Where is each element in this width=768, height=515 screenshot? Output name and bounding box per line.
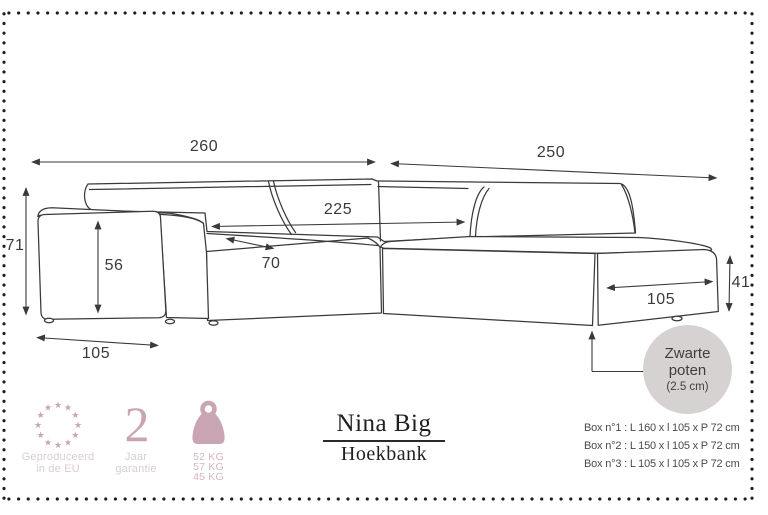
- weight-values: 52 KG 57 KG 45 KG: [181, 452, 236, 483]
- product-name: Nina Big: [294, 411, 474, 437]
- svg-text:★: ★: [64, 438, 72, 448]
- svg-text:★: ★: [71, 431, 79, 441]
- box-line-3: Box n°3 : L 105 x l 105 x P 72 cm: [584, 455, 756, 473]
- title-divider: [323, 440, 445, 442]
- dimension-armrest-depth: 105: [82, 346, 110, 362]
- warranty-caption-line1: Jaar: [86, 452, 186, 464]
- dimension-seat-depth: 70: [262, 256, 281, 272]
- svg-text:★: ★: [54, 441, 62, 451]
- dimension-inner-back-width: 225: [324, 202, 352, 218]
- dimension-chaise-height: 41: [732, 275, 751, 291]
- sofa-outline: [38, 179, 719, 326]
- box-dimensions-list: Box n°1 : L 160 x l 105 x P 72 cm Box n°…: [584, 419, 756, 473]
- product-type: Hoekbank: [294, 444, 474, 465]
- svg-text:★: ★: [37, 431, 45, 441]
- product-title-block: Nina Big Hoekbank: [294, 411, 474, 465]
- dimension-total-height: 71: [6, 238, 25, 254]
- svg-text:★: ★: [71, 411, 79, 421]
- svg-text:★: ★: [34, 421, 42, 431]
- weight-icon: [186, 399, 231, 449]
- svg-text:★: ★: [54, 401, 62, 411]
- warranty-badge-caption: Jaar garantie: [86, 452, 186, 475]
- dimension-armrest-height: 56: [105, 258, 124, 274]
- leg-callout-line1: Zwarte: [665, 345, 711, 362]
- leg-callout-line2: poten: [669, 362, 707, 379]
- eu-stars-icon: ★ ★ ★ ★ ★ ★ ★ ★ ★ ★ ★ ★: [28, 398, 88, 452]
- dimension-chaise-total-depth: 250: [537, 145, 565, 161]
- svg-text:★: ★: [74, 421, 82, 431]
- leg-callout-bubble: Zwarte poten (2.5 cm): [643, 325, 732, 414]
- product-spec-sheet: 260 250 71 56 105 225 70 105 41 Zwarte p…: [0, 0, 768, 515]
- dimension-chaise-front-width: 105: [647, 292, 675, 308]
- warranty-years-number: 2: [112, 400, 162, 448]
- svg-text:★: ★: [44, 438, 52, 448]
- box-line-2: Box n°2 : L 150 x l 105 x P 72 cm: [584, 437, 756, 455]
- box-line-1: Box n°1 : L 160 x l 105 x P 72 cm: [584, 419, 756, 437]
- svg-text:★: ★: [44, 404, 52, 414]
- weight-value-3: 45 KG: [181, 472, 236, 482]
- leg-callout-line3: (2.5 cm): [666, 380, 708, 394]
- dimension-total-width: 260: [190, 139, 218, 155]
- warranty-caption-line2: garantie: [86, 464, 186, 476]
